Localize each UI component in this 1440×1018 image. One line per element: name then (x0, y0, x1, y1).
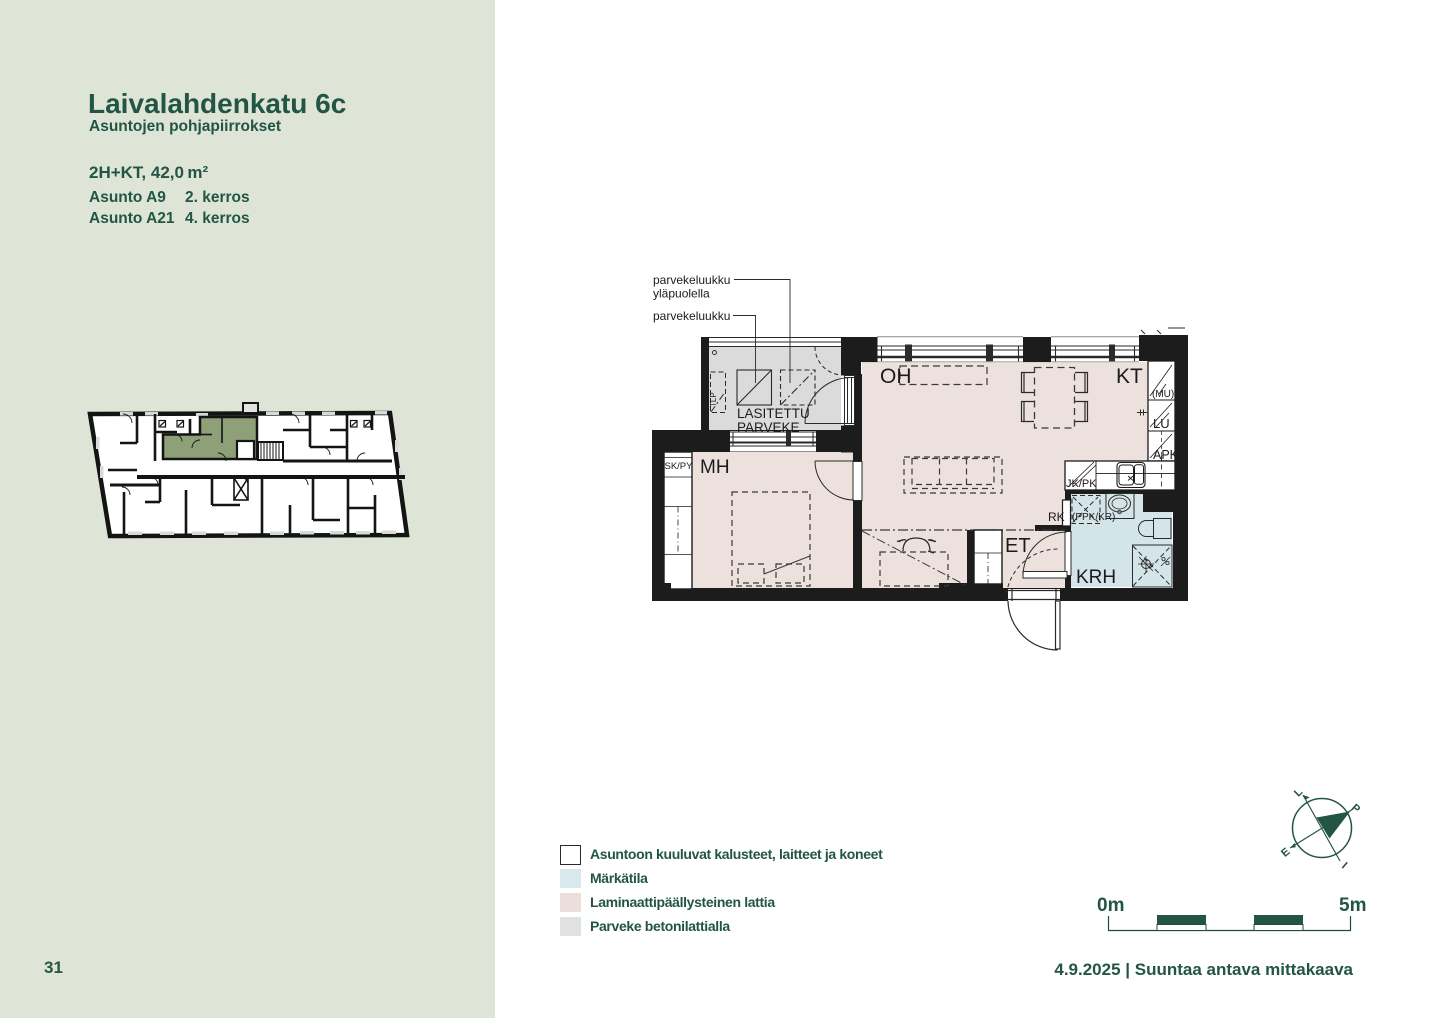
svg-text:KT: KT (1116, 365, 1143, 388)
svg-text:LU: LU (1153, 416, 1170, 431)
svg-text:APK: APK (1153, 448, 1179, 462)
svg-text:L: L (1292, 786, 1305, 799)
svg-text:RK: RK (1048, 510, 1065, 524)
svg-text:5m: 5m (1339, 895, 1366, 916)
svg-text:(MU): (MU) (1152, 389, 1174, 400)
svg-text:LASITETTU: LASITETTU (737, 406, 810, 421)
svg-text:parvekeluukku: parvekeluukku (653, 273, 730, 287)
svg-text:MH: MH (700, 457, 730, 478)
svg-text:parvekeluukku: parvekeluukku (653, 309, 730, 323)
svg-text:0m: 0m (1097, 895, 1124, 916)
svg-text:ET: ET (1005, 535, 1031, 557)
svg-text:KRH: KRH (1076, 567, 1116, 588)
svg-text:JK/PK: JK/PK (1066, 478, 1097, 490)
svg-text:PARVEKE: PARVEKE (737, 420, 800, 435)
svg-text:(PPK/KR): (PPK/KR) (1072, 512, 1115, 523)
svg-text:SK/PY: SK/PY (665, 461, 694, 472)
svg-text:yläpuolella: yläpuolella (653, 287, 710, 301)
svg-text:TLP: TLP (709, 392, 718, 407)
svg-text:I: I (1339, 860, 1349, 871)
svg-text:OH: OH (880, 365, 912, 388)
svg-text:P: P (1349, 802, 1362, 816)
